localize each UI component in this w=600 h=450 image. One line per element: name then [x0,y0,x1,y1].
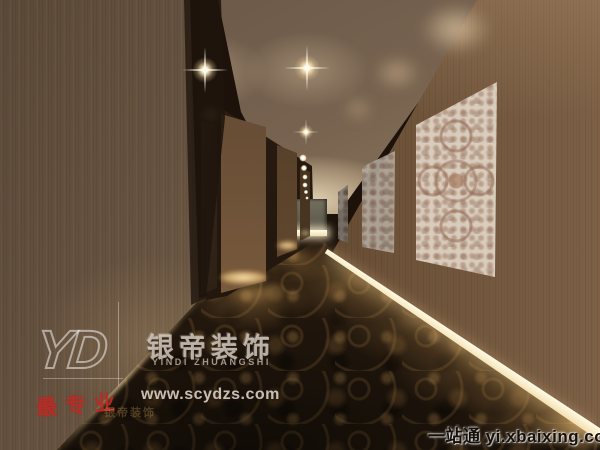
ceiling-downlight-far [303,175,308,180]
ceiling-downlight [299,125,314,140]
ceiling-downlight [294,55,320,81]
faint-brand-watermark: 银帝装饰 [104,404,156,420]
wall-wash-light [420,3,492,55]
watermark-crosshair-vertical [118,302,119,386]
ceiling-downlight-far [306,197,309,200]
ceiling-downlight-far [303,183,308,188]
ceiling-downlight [192,57,218,83]
yd-logo-text: YD [36,320,109,380]
pillar-base-light [300,230,311,236]
pillar-base-light [277,241,298,250]
watermark-crosshair-horizontal [43,378,123,379]
wall-wash-light [373,55,421,91]
ceiling-downlight-far [301,165,307,171]
wall-wash-light [342,96,374,122]
ceiling-downlight-far [300,155,307,162]
website-watermark: www.scydzs.com [141,386,280,404]
corridor-photo: YD 银帝装饰 YINDI ZHUANGSHI www.scydzs.com 最… [0,0,600,450]
pillar-base-light [220,271,267,284]
brand-watermark-pinyin: YINDI ZHUANGSHI [152,357,271,367]
portal-footer-watermark: 一站通 yi.xbaixing.com [428,422,600,447]
ceiling-downlight-far [304,190,308,194]
